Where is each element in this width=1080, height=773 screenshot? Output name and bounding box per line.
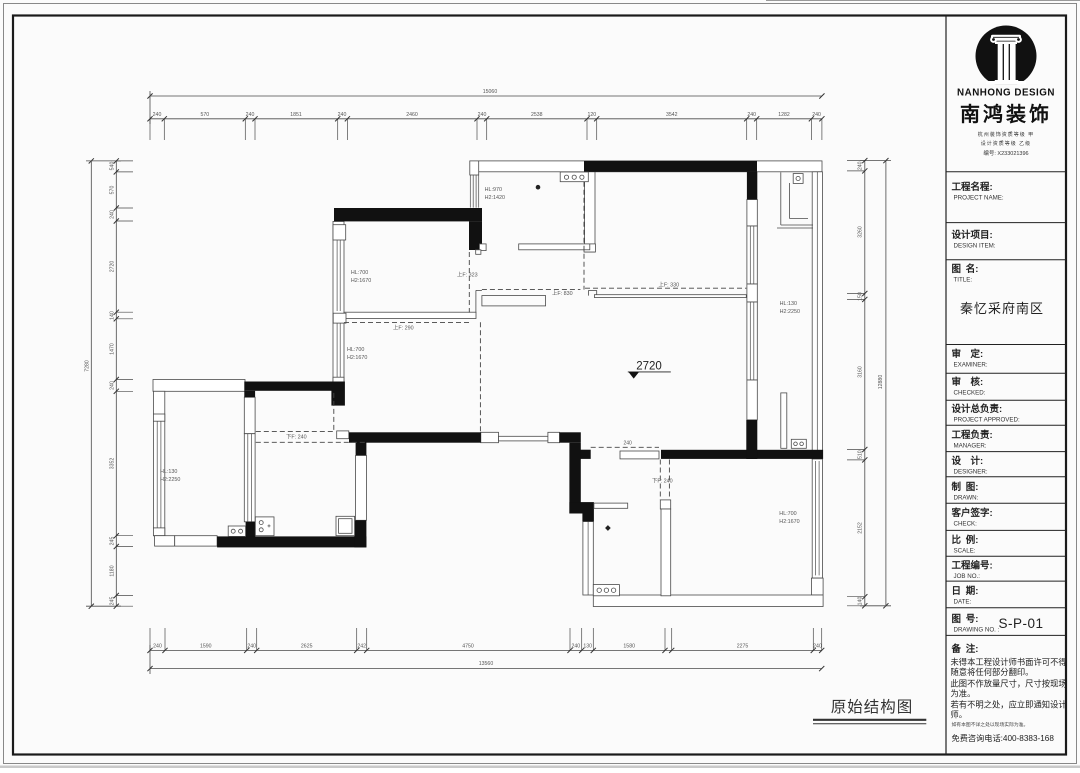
svg-text:1180: 1180: [110, 565, 116, 576]
svg-text:DESIGN ITEM:: DESIGN ITEM:: [954, 243, 996, 250]
svg-text:上F: 330: 上F: 330: [659, 281, 680, 289]
svg-text:240: 240: [246, 112, 255, 118]
svg-text:240: 240: [624, 441, 633, 447]
svg-text:杭州装饰资质等级 甲: 杭州装饰资质等级 甲: [978, 131, 1034, 138]
svg-text:设计项目:: 设计项目:: [952, 229, 993, 241]
svg-text:原始结构图: 原始结构图: [831, 698, 914, 716]
svg-text:2152: 2152: [858, 522, 864, 534]
svg-text:240: 240: [813, 644, 822, 650]
svg-text:245: 245: [110, 597, 116, 606]
svg-text:240: 240: [338, 112, 347, 118]
svg-text:240: 240: [110, 381, 116, 390]
svg-text:2720: 2720: [636, 361, 662, 373]
svg-text:242: 242: [357, 644, 366, 650]
svg-text:秦忆采府南区: 秦忆采府南区: [960, 301, 1044, 316]
svg-text:HL:130: HL:130: [160, 469, 177, 475]
svg-text:TITLE:: TITLE:: [954, 277, 973, 284]
svg-text:240: 240: [153, 644, 162, 650]
svg-text:工程名程:: 工程名程:: [952, 181, 993, 193]
svg-text:245: 245: [110, 537, 116, 546]
svg-text:设 计:: 设 计:: [952, 455, 984, 467]
svg-text:编号: X233021396: 编号: X233021396: [983, 149, 1028, 157]
svg-text:2625: 2625: [301, 644, 313, 650]
svg-text:DESIGNER:: DESIGNER:: [954, 469, 988, 476]
svg-text:240: 240: [812, 112, 821, 118]
svg-text:HL:700: HL:700: [779, 511, 796, 517]
svg-text:设计总负责:: 设计总负责:: [952, 403, 1003, 415]
svg-text:JOB NO.:: JOB NO.:: [954, 573, 981, 580]
svg-text:CHECK:: CHECK:: [954, 521, 978, 528]
svg-text:SCALE:: SCALE:: [954, 548, 976, 555]
svg-text:备 注:: 备 注:: [951, 643, 979, 655]
svg-text:140: 140: [858, 597, 864, 606]
svg-text:上F: 830: 上F: 830: [552, 289, 573, 297]
svg-text:120: 120: [587, 112, 596, 118]
svg-text:15060: 15060: [483, 89, 498, 95]
svg-text:审 核:: 审 核:: [952, 376, 984, 388]
svg-text:未得本工程设计师书面许可不得: 未得本工程设计师书面许可不得: [951, 657, 1067, 667]
svg-text:H2:1670: H2:1670: [351, 278, 371, 284]
svg-text:HL:130: HL:130: [780, 301, 797, 307]
svg-text:130: 130: [583, 644, 592, 650]
svg-text:2720: 2720: [110, 261, 116, 273]
svg-text:H2:1420: H2:1420: [485, 195, 505, 201]
svg-text:240: 240: [747, 112, 756, 118]
svg-text:1851: 1851: [290, 112, 302, 118]
svg-text:2538: 2538: [531, 112, 543, 118]
svg-text:150: 150: [858, 292, 864, 301]
svg-text:为准。: 为准。: [951, 689, 976, 699]
svg-text:图 号:: 图 号:: [952, 614, 979, 625]
svg-text:3542: 3542: [666, 112, 678, 118]
svg-text:1470: 1470: [110, 343, 116, 355]
svg-text:H2:2250: H2:2250: [780, 309, 800, 315]
svg-text:随意将任何部分翻印。: 随意将任何部分翻印。: [951, 667, 1034, 677]
svg-text:240: 240: [858, 161, 864, 170]
svg-text:240: 240: [153, 112, 162, 118]
svg-text:3260: 3260: [858, 226, 864, 238]
svg-text:审 定:: 审 定:: [952, 348, 984, 360]
svg-text:工程负责:: 工程负责:: [952, 429, 993, 441]
svg-text:1580: 1580: [623, 644, 635, 650]
svg-text:PROJECT APPROVED:: PROJECT APPROVED:: [954, 417, 1021, 424]
svg-text:240: 240: [110, 210, 116, 219]
svg-text:2460: 2460: [406, 112, 418, 118]
svg-text:CHECKED:: CHECKED:: [954, 390, 986, 397]
svg-text:DATE:: DATE:: [954, 599, 972, 606]
svg-text:240: 240: [478, 112, 487, 118]
svg-text:师。: 师。: [951, 710, 968, 720]
svg-text:PROJECT NAME:: PROJECT NAME:: [954, 195, 1004, 202]
svg-text:510: 510: [858, 450, 864, 459]
svg-text:若有不明之处，应立即通知设计: 若有不明之处，应立即通知设计: [951, 700, 1067, 710]
svg-text:HL:970: HL:970: [485, 187, 502, 193]
svg-text:上F: 290: 上F: 290: [393, 324, 414, 332]
svg-text:540: 540: [110, 162, 116, 171]
svg-text:免费咨询电话:400-8383-168: 免费咨询电话:400-8383-168: [952, 733, 1055, 743]
svg-text:工程编号:: 工程编号:: [952, 560, 993, 572]
svg-text:H2:1670: H2:1670: [347, 355, 367, 361]
svg-text:EXAMINER:: EXAMINER:: [954, 362, 988, 369]
svg-text:570: 570: [110, 186, 116, 195]
svg-text:MANAGER:: MANAGER:: [954, 443, 987, 450]
svg-text:图 名:: 图 名:: [952, 263, 979, 275]
svg-text:HL:700: HL:700: [351, 270, 368, 276]
svg-text:13560: 13560: [479, 661, 494, 667]
svg-text:1282: 1282: [778, 112, 790, 118]
svg-text:比 例:: 比 例:: [952, 534, 979, 546]
svg-text:如有本图不详之处以现场实际为准。: 如有本图不详之处以现场实际为准。: [952, 721, 1029, 728]
svg-text:下F: 240: 下F: 240: [286, 434, 307, 441]
svg-text:240: 240: [247, 644, 256, 650]
svg-text:下F: 240: 下F: 240: [652, 478, 673, 485]
svg-text:DRAWN:: DRAWN:: [954, 495, 979, 502]
svg-text:H2:1670: H2:1670: [779, 519, 799, 525]
svg-text:140: 140: [110, 311, 116, 320]
svg-text:客户签字:: 客户签字:: [951, 507, 993, 519]
svg-text:2275: 2275: [737, 644, 749, 650]
svg-text:日 期:: 日 期:: [952, 585, 979, 597]
svg-text:240: 240: [571, 644, 580, 650]
svg-text:上F: 323: 上F: 323: [457, 271, 478, 279]
svg-text:4750: 4750: [462, 644, 474, 650]
svg-text:设计资质等级 乙级: 设计资质等级 乙级: [981, 140, 1031, 147]
svg-text:S-P-01: S-P-01: [998, 616, 1043, 631]
svg-text:3352: 3352: [110, 458, 116, 470]
svg-text:NANHONG DESIGN: NANHONG DESIGN: [957, 88, 1055, 99]
svg-text:12880: 12880: [878, 375, 884, 390]
svg-text:H2:2250: H2:2250: [160, 477, 180, 483]
svg-text:南鸿装饰: 南鸿装饰: [960, 102, 1052, 126]
svg-text:此图不作放量尺寸，尺寸按现场: 此图不作放量尺寸，尺寸按现场: [951, 679, 1067, 689]
svg-text:HL:700: HL:700: [347, 347, 364, 353]
svg-text:7280: 7280: [85, 360, 91, 372]
svg-text:1590: 1590: [200, 644, 212, 650]
svg-text:570: 570: [200, 112, 209, 118]
svg-text:3160: 3160: [858, 366, 864, 378]
svg-text:制 图:: 制 图:: [952, 481, 979, 493]
svg-text:DRAWING NO. :: DRAWING NO. :: [954, 627, 1000, 634]
